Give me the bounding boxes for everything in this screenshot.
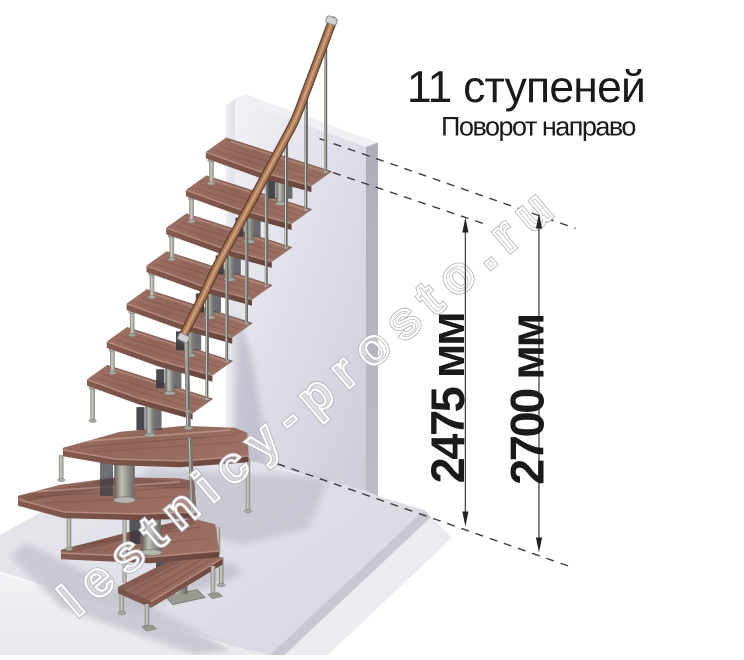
- svg-text:Поворот направо: Поворот направо: [441, 112, 635, 142]
- svg-text:2700 мм: 2700 мм: [501, 315, 554, 485]
- svg-text:2475 мм: 2475 мм: [421, 314, 474, 484]
- svg-text:11 ступеней: 11 ступеней: [407, 63, 645, 112]
